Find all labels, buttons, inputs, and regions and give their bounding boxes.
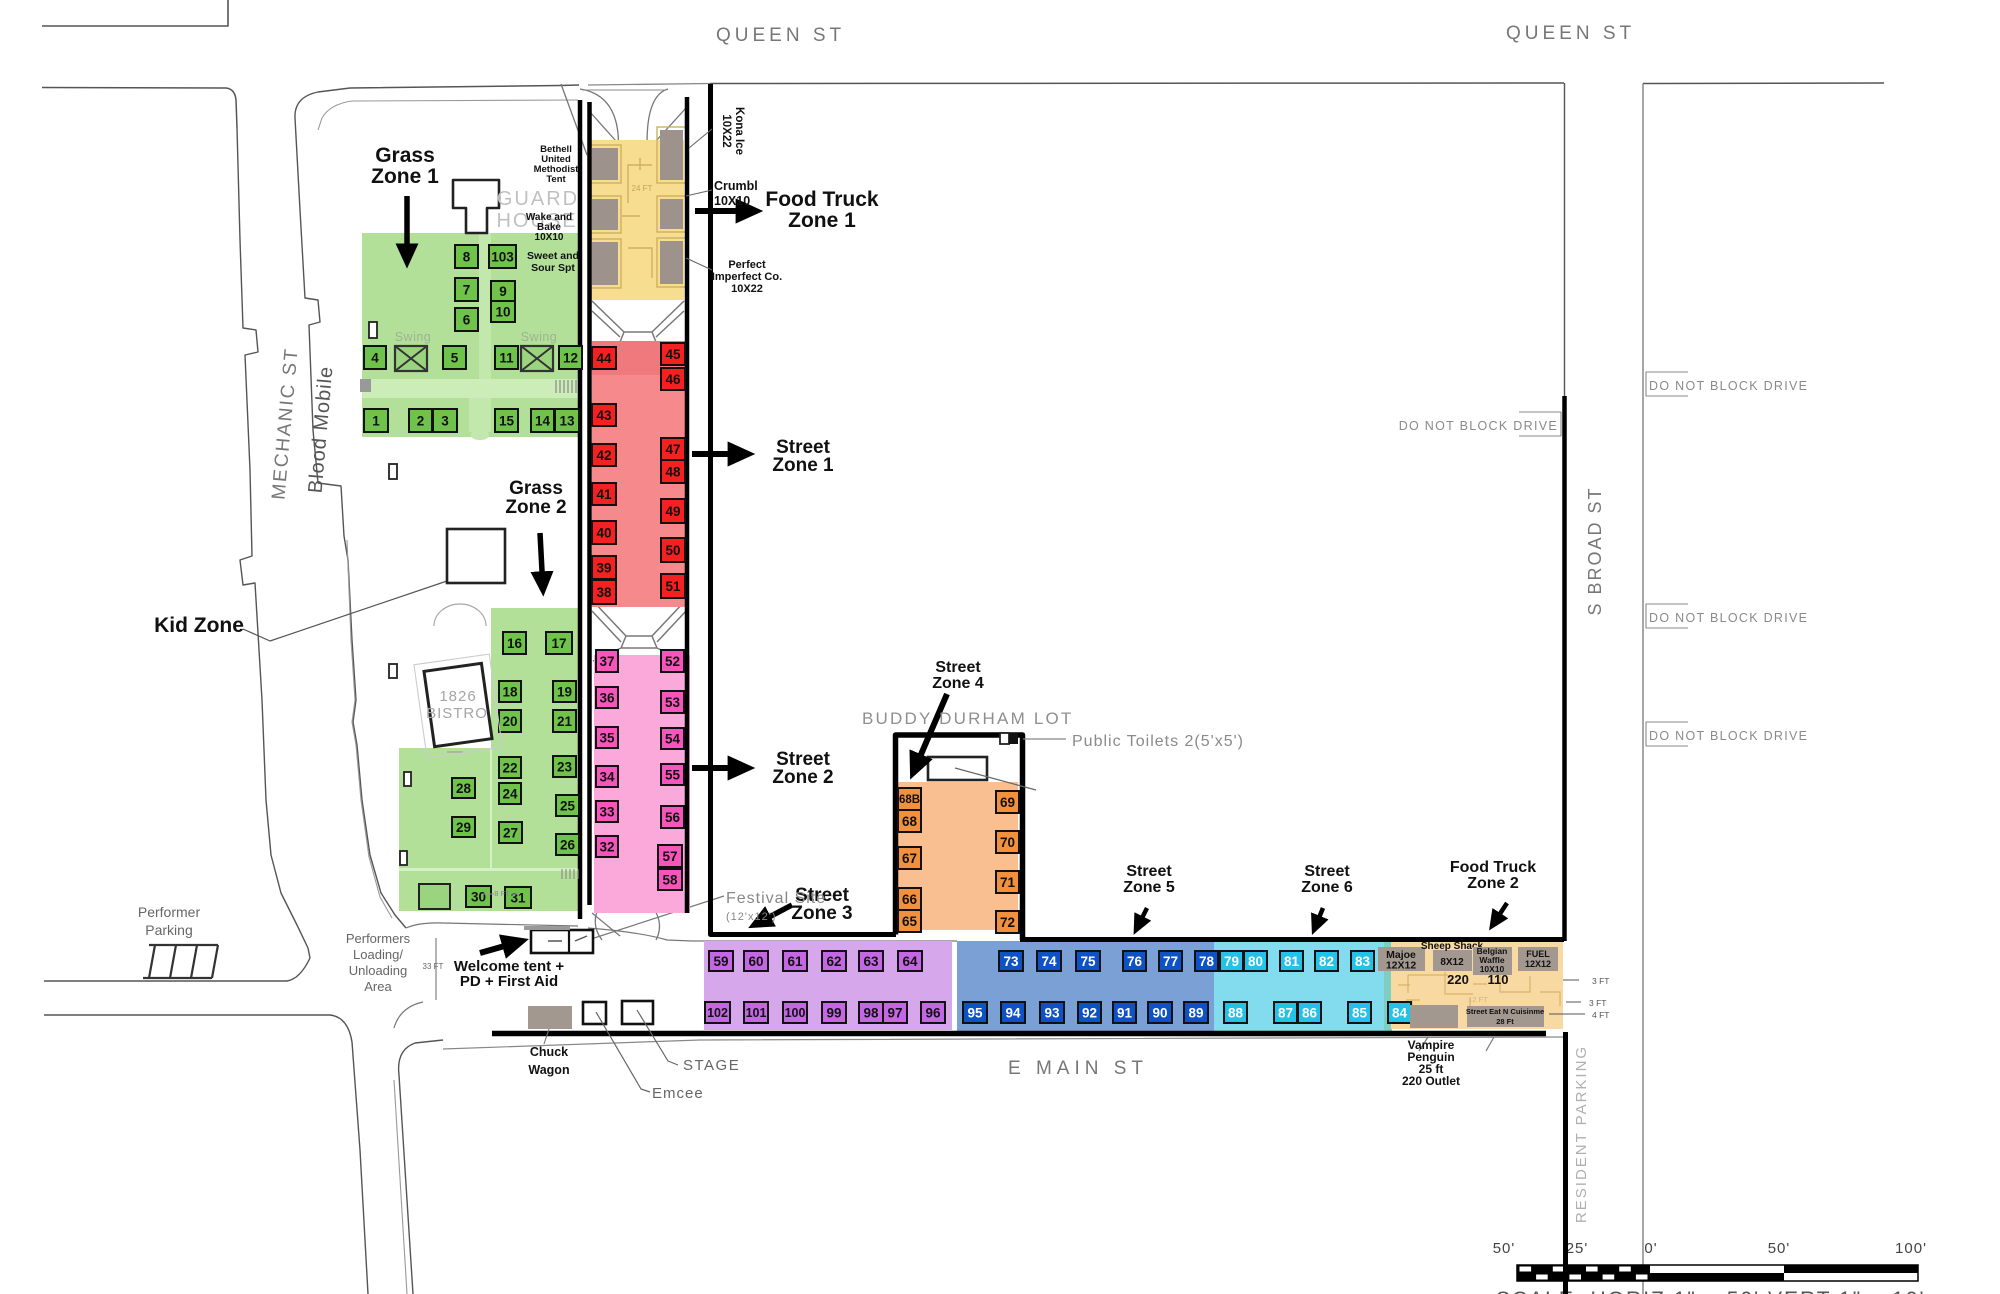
svg-text:DO NOT BLOCK DRIVE: DO NOT BLOCK DRIVE bbox=[1649, 611, 1808, 625]
svg-text:29: 29 bbox=[456, 820, 471, 835]
svg-text:69: 69 bbox=[1000, 795, 1015, 810]
svg-text:43: 43 bbox=[596, 408, 612, 423]
svg-text:41: 41 bbox=[596, 487, 612, 502]
svg-text:6: 6 bbox=[463, 312, 471, 327]
svg-text:Unloading: Unloading bbox=[349, 963, 408, 978]
svg-text:Street: Street bbox=[1304, 863, 1350, 880]
svg-text:2: 2 bbox=[417, 413, 425, 428]
svg-text:Zone 4: Zone 4 bbox=[932, 675, 984, 692]
svg-text:38: 38 bbox=[596, 585, 612, 600]
svg-text:5: 5 bbox=[451, 350, 459, 365]
svg-text:68B: 68B bbox=[899, 794, 920, 806]
svg-text:46: 46 bbox=[665, 372, 681, 387]
svg-text:DO NOT BLOCK DRIVE: DO NOT BLOCK DRIVE bbox=[1649, 379, 1808, 393]
svg-text:101: 101 bbox=[746, 1006, 767, 1020]
svg-text:65: 65 bbox=[902, 914, 918, 929]
svg-text:25': 25' bbox=[1566, 1240, 1589, 1257]
svg-text:44: 44 bbox=[596, 351, 612, 366]
svg-text:Grass: Grass bbox=[509, 478, 563, 499]
svg-text:40: 40 bbox=[596, 525, 611, 540]
svg-text:220: 220 bbox=[1447, 972, 1469, 987]
svg-text:Performers: Performers bbox=[346, 931, 411, 946]
svg-text:Sour Spt: Sour Spt bbox=[531, 262, 575, 274]
svg-text:61: 61 bbox=[787, 954, 803, 969]
svg-text:60: 60 bbox=[748, 954, 763, 969]
svg-text:99: 99 bbox=[826, 1005, 841, 1020]
svg-text:47: 47 bbox=[665, 442, 680, 457]
svg-text:31: 31 bbox=[510, 890, 526, 905]
svg-text:Zone 1: Zone 1 bbox=[788, 209, 856, 232]
svg-text:13: 13 bbox=[559, 413, 575, 428]
svg-text:8X12: 8X12 bbox=[1440, 957, 1464, 968]
svg-text:1: 1 bbox=[372, 413, 380, 428]
svg-text:(12'x12'): (12'x12') bbox=[726, 911, 777, 923]
svg-text:95: 95 bbox=[967, 1005, 983, 1020]
svg-text:96: 96 bbox=[925, 1005, 941, 1020]
svg-text:Zone 6: Zone 6 bbox=[1301, 879, 1353, 896]
svg-text:12 FT: 12 FT bbox=[1468, 995, 1488, 1004]
svg-text:Zone 2: Zone 2 bbox=[505, 497, 566, 518]
svg-text:86: 86 bbox=[1302, 1005, 1318, 1020]
svg-text:57: 57 bbox=[662, 849, 677, 864]
svg-text:34: 34 bbox=[599, 769, 615, 784]
svg-text:25: 25 bbox=[560, 798, 576, 813]
svg-text:55: 55 bbox=[665, 767, 681, 782]
svg-text:Perfect: Perfect bbox=[728, 259, 766, 271]
svg-text:21: 21 bbox=[557, 714, 573, 729]
svg-text:3: 3 bbox=[441, 413, 449, 428]
svg-text:103: 103 bbox=[491, 249, 514, 264]
svg-text:59: 59 bbox=[713, 954, 728, 969]
svg-text:51: 51 bbox=[665, 579, 681, 594]
svg-text:18: 18 bbox=[502, 684, 518, 699]
svg-text:75: 75 bbox=[1080, 954, 1096, 969]
svg-text:94: 94 bbox=[1005, 1005, 1021, 1020]
svg-text:37: 37 bbox=[599, 654, 614, 669]
svg-text:22: 22 bbox=[502, 760, 517, 775]
svg-text:10X22: 10X22 bbox=[720, 114, 732, 147]
svg-text:80: 80 bbox=[1248, 954, 1263, 969]
svg-text:4 FT: 4 FT bbox=[1592, 1010, 1609, 1020]
svg-text:50': 50' bbox=[1493, 1240, 1516, 1257]
svg-text:7: 7 bbox=[463, 282, 471, 297]
svg-text:Zone 5: Zone 5 bbox=[1123, 879, 1175, 896]
svg-text:28: 28 bbox=[456, 781, 472, 796]
svg-text:Loading/: Loading/ bbox=[353, 947, 403, 962]
svg-text:70: 70 bbox=[1000, 835, 1015, 850]
svg-text:Public Toilets 2(5'x5'): Public Toilets 2(5'x5') bbox=[1072, 733, 1244, 750]
svg-text:82: 82 bbox=[1319, 954, 1334, 969]
svg-text:17: 17 bbox=[551, 636, 566, 651]
svg-text:20: 20 bbox=[502, 714, 517, 729]
svg-text:23: 23 bbox=[557, 759, 573, 774]
svg-text:Emcee: Emcee bbox=[652, 1085, 704, 1102]
svg-text:58: 58 bbox=[662, 872, 678, 887]
svg-text:28 Ft: 28 Ft bbox=[1496, 1017, 1514, 1026]
svg-text:72: 72 bbox=[1000, 915, 1015, 930]
svg-text:Crumbl: Crumbl bbox=[714, 179, 758, 193]
svg-text:10: 10 bbox=[495, 304, 510, 319]
svg-text:63: 63 bbox=[863, 954, 879, 969]
svg-text:8: 8 bbox=[463, 249, 471, 264]
svg-text:15: 15 bbox=[499, 413, 515, 428]
svg-text:81: 81 bbox=[1284, 954, 1300, 969]
svg-text:RESIDENT PARKING: RESIDENT PARKING bbox=[1573, 1045, 1590, 1223]
svg-text:39: 39 bbox=[596, 560, 611, 575]
svg-text:11: 11 bbox=[499, 350, 514, 365]
svg-text:53: 53 bbox=[665, 695, 681, 710]
svg-text:Performer: Performer bbox=[138, 904, 201, 920]
svg-text:50': 50' bbox=[1768, 1240, 1791, 1257]
svg-text:Wagon: Wagon bbox=[528, 1063, 569, 1077]
svg-text:100': 100' bbox=[1895, 1240, 1927, 1257]
svg-text:10X22: 10X22 bbox=[731, 283, 763, 295]
svg-text:100: 100 bbox=[785, 1006, 806, 1020]
svg-text:89: 89 bbox=[1188, 1005, 1203, 1020]
svg-text:83: 83 bbox=[1355, 954, 1371, 969]
svg-text:Swing: Swing bbox=[395, 330, 432, 344]
svg-text:87: 87 bbox=[1278, 1005, 1293, 1020]
svg-text:GUARD: GUARD bbox=[497, 188, 579, 210]
svg-text:FUEL: FUEL bbox=[1526, 949, 1550, 959]
svg-text:32: 32 bbox=[599, 839, 614, 854]
svg-text:Grass: Grass bbox=[375, 144, 435, 167]
svg-text:84: 84 bbox=[1392, 1005, 1408, 1020]
svg-text:45: 45 bbox=[665, 347, 681, 362]
svg-text:71: 71 bbox=[1000, 875, 1016, 890]
svg-text:36: 36 bbox=[599, 690, 615, 705]
svg-text:9: 9 bbox=[499, 284, 507, 299]
svg-text:Swing: Swing bbox=[521, 330, 558, 344]
svg-text:14: 14 bbox=[535, 413, 551, 428]
svg-text:33: 33 bbox=[599, 804, 615, 819]
svg-text:19: 19 bbox=[557, 684, 572, 699]
svg-text:110: 110 bbox=[1488, 972, 1509, 987]
svg-text:85: 85 bbox=[1352, 1005, 1368, 1020]
svg-text:56: 56 bbox=[665, 810, 681, 825]
svg-text:3 FT: 3 FT bbox=[1592, 976, 1609, 986]
svg-text:Zone 2: Zone 2 bbox=[1467, 875, 1519, 892]
svg-text:Zone 2: Zone 2 bbox=[772, 767, 833, 788]
svg-text:24: 24 bbox=[502, 786, 518, 801]
svg-text:79: 79 bbox=[1224, 954, 1239, 969]
svg-text:220 Outlet: 220 Outlet bbox=[1402, 1074, 1460, 1088]
svg-text:64: 64 bbox=[902, 954, 918, 969]
svg-text:102: 102 bbox=[707, 1006, 728, 1020]
svg-text:35: 35 bbox=[599, 730, 615, 745]
svg-text:10X10: 10X10 bbox=[535, 232, 564, 243]
svg-text:Kid Zone: Kid Zone bbox=[154, 614, 244, 637]
svg-text:S BROAD ST: S BROAD ST bbox=[1585, 486, 1605, 615]
svg-text:74: 74 bbox=[1041, 954, 1057, 969]
svg-text:12X12: 12X12 bbox=[1386, 960, 1417, 972]
svg-text:10X10: 10X10 bbox=[714, 194, 750, 208]
svg-text:42: 42 bbox=[596, 448, 611, 463]
svg-text:QUEEN ST: QUEEN ST bbox=[716, 25, 845, 46]
svg-text:DO NOT BLOCK DRIVE: DO NOT BLOCK DRIVE bbox=[1399, 419, 1558, 433]
svg-text:BISTRO: BISTRO bbox=[426, 705, 488, 722]
svg-text:STAGE: STAGE bbox=[683, 1057, 740, 1074]
svg-text:Tent: Tent bbox=[546, 174, 566, 185]
svg-text:Street Eat N Cuisinme: Street Eat N Cuisinme bbox=[1466, 1007, 1544, 1016]
svg-text:93: 93 bbox=[1044, 1005, 1060, 1020]
svg-text:67: 67 bbox=[902, 851, 917, 866]
svg-text:Zone 1: Zone 1 bbox=[772, 455, 834, 476]
svg-text:E MAIN ST: E MAIN ST bbox=[1008, 1058, 1148, 1079]
svg-text:Food Truck: Food Truck bbox=[765, 188, 878, 211]
svg-text:4: 4 bbox=[371, 350, 379, 365]
svg-text:98: 98 bbox=[863, 1005, 879, 1020]
svg-text:78: 78 bbox=[1199, 954, 1215, 969]
svg-text:73: 73 bbox=[1003, 954, 1019, 969]
svg-text:77: 77 bbox=[1163, 954, 1178, 969]
svg-text:12: 12 bbox=[563, 350, 578, 365]
svg-text:PD + First Aid: PD + First Aid bbox=[460, 973, 558, 990]
svg-text:SCALE: HORIZ 1" = 50' VERT: SCALE: HORIZ 1" = 50' VERT 1" = 10' bbox=[1496, 1288, 1925, 1294]
svg-text:76: 76 bbox=[1127, 954, 1143, 969]
svg-text:0': 0' bbox=[1644, 1240, 1657, 1257]
svg-text:Street: Street bbox=[935, 659, 981, 676]
svg-text:Imperfect Co.: Imperfect Co. bbox=[712, 271, 782, 283]
svg-text:Zone 1: Zone 1 bbox=[371, 165, 439, 188]
svg-text:Sweet and: Sweet and bbox=[527, 250, 579, 262]
svg-text:Street: Street bbox=[1126, 863, 1172, 880]
svg-text:DO NOT BLOCK DRIVE: DO NOT BLOCK DRIVE bbox=[1649, 729, 1808, 743]
svg-text:54: 54 bbox=[665, 731, 681, 746]
svg-text:48: 48 bbox=[665, 464, 681, 479]
svg-text:8 FT: 8 FT bbox=[494, 889, 510, 898]
svg-text:QUEEN ST: QUEEN ST bbox=[1506, 23, 1635, 44]
svg-text:Area: Area bbox=[364, 979, 392, 994]
svg-text:26: 26 bbox=[560, 837, 576, 852]
svg-text:27: 27 bbox=[503, 825, 518, 840]
svg-text:12X12: 12X12 bbox=[1525, 959, 1551, 969]
svg-text:Kona Ice: Kona Ice bbox=[733, 107, 745, 155]
svg-text:66: 66 bbox=[902, 892, 918, 907]
svg-text:33 FT: 33 FT bbox=[423, 962, 444, 971]
svg-text:52: 52 bbox=[665, 654, 680, 669]
svg-text:50: 50 bbox=[665, 543, 680, 558]
svg-text:1826: 1826 bbox=[439, 688, 476, 705]
svg-text:62: 62 bbox=[826, 954, 841, 969]
svg-text:97: 97 bbox=[887, 1005, 902, 1020]
svg-text:Food Truck: Food Truck bbox=[1450, 859, 1536, 876]
svg-text:16: 16 bbox=[507, 636, 523, 651]
svg-text:24 FT: 24 FT bbox=[632, 184, 653, 193]
svg-text:88: 88 bbox=[1228, 1005, 1244, 1020]
svg-text:3 FT: 3 FT bbox=[1589, 998, 1606, 1008]
svg-text:Parking: Parking bbox=[145, 922, 192, 938]
svg-text:BUDDY DURHAM LOT: BUDDY DURHAM LOT bbox=[862, 709, 1074, 728]
svg-text:Chuck: Chuck bbox=[530, 1045, 568, 1059]
svg-text:Festival Site: Festival Site bbox=[726, 890, 826, 907]
svg-text:90: 90 bbox=[1152, 1005, 1167, 1020]
svg-text:30: 30 bbox=[471, 889, 486, 904]
svg-text:49: 49 bbox=[665, 504, 680, 519]
svg-text:68: 68 bbox=[902, 814, 918, 829]
svg-text:92: 92 bbox=[1082, 1005, 1097, 1020]
svg-text:91: 91 bbox=[1117, 1005, 1133, 1020]
